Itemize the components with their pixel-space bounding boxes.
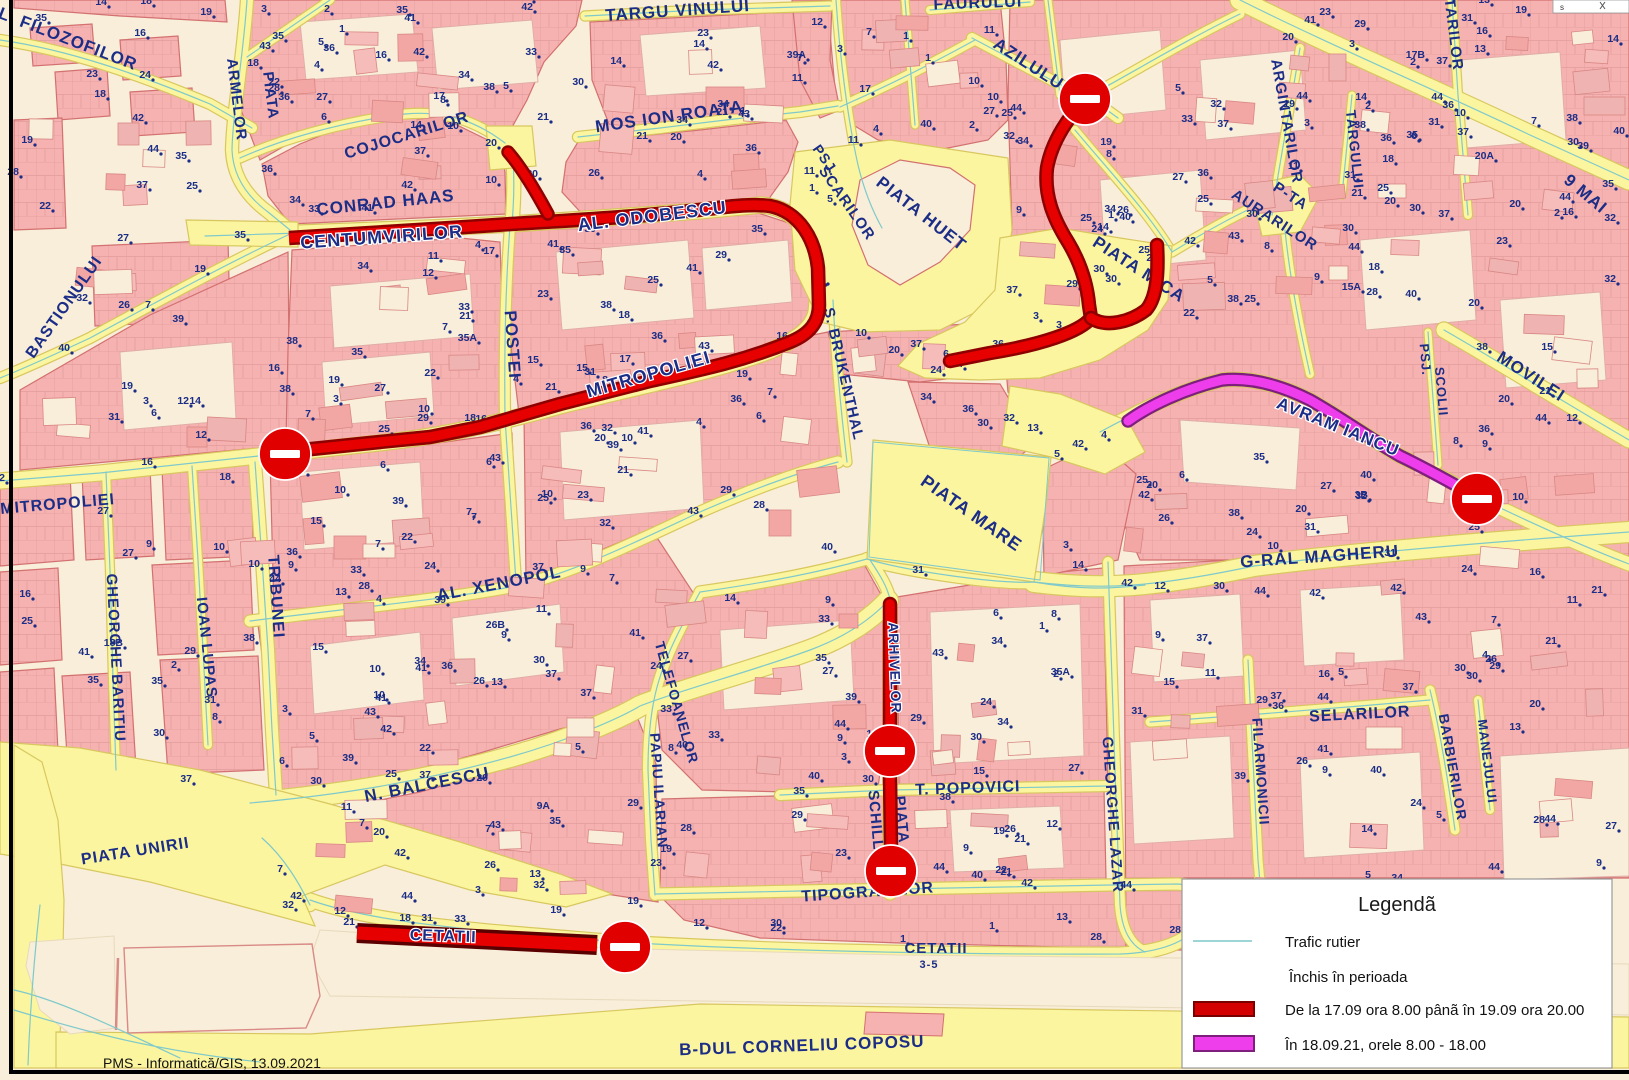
svg-text:9: 9	[580, 563, 586, 575]
svg-text:5: 5	[1338, 666, 1344, 678]
svg-text:38: 38	[279, 383, 291, 395]
svg-text:36: 36	[286, 546, 298, 558]
svg-text:2: 2	[1053, 668, 1059, 680]
svg-text:31: 31	[1304, 521, 1316, 533]
svg-text:25: 25	[378, 423, 390, 435]
svg-text:43: 43	[364, 706, 376, 718]
svg-text:În 18.09.21, orele 8.00 - 18.0: În 18.09.21, orele 8.00 - 18.00	[1284, 1037, 1486, 1054]
svg-text:8: 8	[1264, 240, 1270, 252]
svg-text:14: 14	[95, 0, 107, 8]
svg-text:12: 12	[334, 905, 346, 917]
svg-text:22: 22	[39, 200, 51, 212]
svg-text:19: 19	[550, 904, 562, 916]
svg-text:13: 13	[1509, 721, 1521, 733]
svg-text:42: 42	[1138, 489, 1150, 501]
svg-text:13: 13	[1027, 422, 1039, 434]
svg-text:11: 11	[804, 165, 815, 177]
svg-text:20: 20	[1282, 31, 1294, 43]
svg-text:20: 20	[1498, 393, 1510, 405]
svg-text:10: 10	[1512, 491, 1524, 503]
svg-text:14: 14	[724, 592, 736, 604]
svg-text:10: 10	[621, 432, 633, 444]
svg-text:18: 18	[247, 57, 259, 69]
svg-text:10: 10	[987, 91, 999, 103]
svg-text:40: 40	[971, 869, 983, 881]
svg-text:42: 42	[401, 179, 413, 191]
svg-text:21: 21	[343, 916, 355, 928]
svg-text:31: 31	[421, 912, 433, 924]
svg-text:3: 3	[1304, 117, 1310, 129]
svg-text:44: 44	[1535, 412, 1547, 424]
svg-text:20: 20	[1384, 195, 1396, 207]
svg-text:25: 25	[1197, 193, 1209, 205]
svg-text:16: 16	[375, 49, 387, 61]
svg-text:25: 25	[385, 768, 397, 780]
svg-text:42: 42	[394, 847, 406, 859]
svg-text:31: 31	[584, 366, 596, 378]
svg-text:43: 43	[259, 40, 271, 52]
svg-text:43: 43	[932, 647, 944, 659]
svg-text:27: 27	[1320, 480, 1332, 492]
svg-text:27: 27	[822, 665, 834, 677]
svg-text:38: 38	[1476, 341, 1488, 353]
svg-text:15: 15	[1541, 341, 1553, 353]
svg-text:9: 9	[825, 594, 831, 606]
svg-text:44: 44	[1431, 91, 1443, 103]
svg-text:34: 34	[289, 194, 301, 206]
svg-text:9A: 9A	[537, 800, 551, 812]
svg-text:25: 25	[1138, 244, 1150, 256]
svg-text:10: 10	[373, 689, 385, 701]
svg-text:16: 16	[1529, 566, 1541, 578]
svg-text:18: 18	[1368, 261, 1380, 273]
svg-text:7: 7	[442, 321, 448, 333]
svg-text:10: 10	[855, 327, 867, 339]
svg-text:44: 44	[1559, 191, 1571, 203]
svg-text:8: 8	[440, 94, 446, 106]
svg-text:14: 14	[610, 55, 622, 67]
svg-text:38: 38	[243, 632, 255, 644]
svg-text:23: 23	[537, 288, 549, 300]
svg-text:29: 29	[184, 645, 196, 657]
svg-text:36: 36	[730, 393, 742, 405]
svg-text:35: 35	[1602, 178, 1614, 190]
svg-text:25: 25	[186, 180, 198, 192]
svg-text:39: 39	[172, 313, 184, 325]
svg-text:37: 37	[910, 338, 922, 350]
svg-text:41: 41	[637, 425, 649, 437]
svg-text:15: 15	[310, 515, 322, 527]
svg-text:41: 41	[629, 627, 641, 639]
svg-text:Trafic rutier: Trafic rutier	[1285, 934, 1360, 951]
svg-text:17: 17	[859, 83, 871, 95]
svg-text:44: 44	[401, 890, 413, 902]
svg-text:44: 44	[1317, 691, 1329, 703]
svg-text:9: 9	[1016, 204, 1022, 216]
svg-text:35: 35	[151, 675, 163, 687]
svg-text:37: 37	[1217, 118, 1229, 130]
svg-text:33: 33	[454, 913, 466, 925]
svg-text:44: 44	[1296, 90, 1308, 102]
svg-text:40: 40	[808, 770, 820, 782]
svg-text:9: 9	[1155, 629, 1161, 641]
svg-text:11: 11	[536, 603, 547, 615]
svg-text:2: 2	[324, 3, 330, 15]
svg-text:4: 4	[697, 168, 703, 180]
svg-text:4: 4	[376, 593, 382, 605]
svg-text:43: 43	[489, 819, 501, 831]
svg-text:23: 23	[577, 489, 589, 501]
svg-text:3: 3	[143, 395, 149, 407]
svg-text:2: 2	[171, 659, 177, 671]
svg-text:20: 20	[888, 344, 900, 356]
svg-text:5: 5	[1207, 274, 1213, 286]
svg-text:21: 21	[1591, 584, 1603, 596]
svg-text:5: 5	[503, 80, 509, 92]
svg-text:36: 36	[745, 142, 757, 154]
svg-text:26: 26	[588, 167, 600, 179]
svg-text:37: 37	[1196, 632, 1208, 644]
svg-text:30: 30	[1454, 662, 1466, 674]
svg-text:35: 35	[87, 674, 99, 686]
svg-text:7: 7	[866, 26, 872, 38]
svg-text:33: 33	[818, 613, 830, 625]
svg-text:34: 34	[458, 69, 470, 81]
svg-text:30: 30	[310, 775, 322, 787]
svg-text:28: 28	[680, 822, 692, 834]
svg-text:36: 36	[1380, 132, 1392, 144]
svg-text:21: 21	[537, 111, 549, 123]
svg-text:23: 23	[1319, 6, 1331, 18]
svg-text:22: 22	[995, 864, 1007, 876]
svg-text:23: 23	[1496, 235, 1508, 247]
svg-text:24: 24	[424, 560, 436, 572]
svg-text:20: 20	[485, 137, 497, 149]
svg-text:5: 5	[1175, 82, 1181, 94]
svg-text:21: 21	[459, 310, 471, 322]
svg-text:28: 28	[1366, 286, 1378, 298]
svg-text:19: 19	[200, 6, 212, 18]
svg-text:41: 41	[686, 262, 698, 274]
svg-text:11: 11	[848, 134, 859, 146]
svg-text:18: 18	[618, 309, 630, 321]
svg-text:10: 10	[334, 484, 346, 496]
svg-text:24: 24	[139, 69, 151, 81]
svg-text:30: 30	[533, 654, 545, 666]
svg-text:4: 4	[696, 416, 702, 428]
svg-text:39: 39	[607, 439, 619, 451]
svg-text:30: 30	[1105, 273, 1117, 285]
svg-text:5: 5	[318, 36, 324, 48]
svg-text:42: 42	[1121, 577, 1133, 589]
svg-text:20: 20	[1295, 503, 1307, 515]
svg-text:3: 3	[1349, 38, 1355, 50]
svg-text:36: 36	[580, 420, 592, 432]
svg-text:19: 19	[21, 134, 33, 146]
svg-text:30: 30	[862, 773, 874, 785]
svg-text:18: 18	[94, 88, 106, 100]
svg-text:39: 39	[342, 752, 354, 764]
svg-text:37: 37	[1402, 681, 1414, 693]
svg-text:42: 42	[380, 723, 392, 735]
svg-text:32: 32	[601, 422, 613, 434]
svg-text:31: 31	[1131, 705, 1143, 717]
svg-text:9: 9	[963, 842, 969, 854]
svg-text:40: 40	[58, 342, 70, 354]
svg-text:34: 34	[1104, 203, 1116, 215]
svg-text:10: 10	[248, 558, 260, 570]
svg-text:29: 29	[715, 249, 727, 261]
svg-text:9: 9	[501, 629, 507, 641]
svg-text:38: 38	[600, 299, 612, 311]
svg-text:16: 16	[1318, 668, 1330, 680]
svg-text:29: 29	[1066, 278, 1078, 290]
svg-text:10: 10	[1454, 107, 1466, 119]
svg-text:36: 36	[1197, 167, 1209, 179]
svg-text:35: 35	[549, 815, 561, 827]
svg-text:29: 29	[1354, 18, 1366, 30]
svg-text:18: 18	[140, 0, 152, 7]
svg-text:9: 9	[837, 732, 843, 744]
svg-text:22: 22	[1183, 307, 1195, 319]
svg-text:19: 19	[736, 368, 748, 380]
svg-text:15: 15	[1163, 676, 1175, 688]
svg-text:7: 7	[305, 408, 311, 420]
svg-text:12: 12	[422, 267, 434, 279]
svg-text:35: 35	[559, 244, 571, 256]
svg-text:16: 16	[19, 588, 31, 600]
svg-text:1: 1	[809, 182, 815, 194]
svg-text:19: 19	[121, 380, 133, 392]
svg-text:9: 9	[146, 538, 152, 550]
svg-text:39: 39	[1577, 140, 1589, 152]
svg-text:34: 34	[357, 260, 369, 272]
svg-text:3: 3	[261, 3, 267, 15]
svg-text:24: 24	[930, 364, 942, 376]
svg-text:36: 36	[441, 660, 453, 672]
svg-text:8: 8	[1106, 148, 1112, 160]
svg-text:27: 27	[983, 105, 995, 117]
svg-text:17: 17	[619, 353, 631, 365]
svg-text:30: 30	[572, 76, 584, 88]
svg-text:37: 37	[414, 145, 426, 157]
svg-text:s: s	[1560, 3, 1564, 12]
svg-text:44: 44	[933, 861, 945, 873]
svg-text:27: 27	[117, 232, 129, 244]
svg-text:3: 3	[837, 43, 843, 55]
svg-text:14: 14	[1072, 559, 1084, 571]
svg-text:31: 31	[1428, 116, 1440, 128]
svg-text:35: 35	[793, 785, 805, 797]
svg-text:30: 30	[1342, 222, 1354, 234]
svg-text:11: 11	[984, 24, 995, 36]
svg-text:CETATII: CETATII	[904, 940, 967, 957]
svg-text:28: 28	[1169, 924, 1181, 936]
svg-text:2: 2	[1410, 56, 1416, 68]
svg-text:22: 22	[401, 531, 413, 543]
svg-text:30: 30	[970, 731, 982, 743]
svg-text:15: 15	[527, 354, 539, 366]
svg-text:11: 11	[792, 72, 803, 84]
svg-text:4: 4	[873, 123, 879, 135]
svg-text:35: 35	[272, 30, 284, 42]
svg-text:24: 24	[1246, 526, 1258, 538]
svg-text:44: 44	[1348, 241, 1360, 253]
svg-text:18: 18	[399, 912, 411, 924]
svg-text:32: 32	[0, 472, 5, 484]
svg-text:30: 30	[1567, 136, 1579, 148]
svg-text:29: 29	[1489, 660, 1501, 672]
svg-text:4: 4	[314, 59, 320, 71]
svg-text:9: 9	[1482, 438, 1488, 450]
svg-text:23: 23	[650, 857, 662, 869]
svg-text:27: 27	[1172, 171, 1184, 183]
svg-text:11: 11	[428, 250, 439, 262]
svg-text:14: 14	[693, 38, 705, 50]
svg-text:42: 42	[1072, 438, 1084, 450]
svg-text:9: 9	[1596, 857, 1602, 869]
svg-text:27: 27	[374, 382, 386, 394]
svg-text:37: 37	[1270, 690, 1282, 702]
svg-text:33: 33	[525, 46, 537, 58]
svg-text:3: 3	[841, 751, 847, 763]
svg-text:40: 40	[1119, 211, 1131, 223]
svg-text:19: 19	[194, 263, 206, 275]
svg-text:30: 30	[1093, 263, 1105, 275]
svg-text:40: 40	[1360, 469, 1372, 481]
svg-text:40: 40	[821, 541, 833, 553]
svg-text:26: 26	[484, 859, 496, 871]
svg-text:34: 34	[920, 391, 932, 403]
svg-text:8: 8	[668, 742, 674, 754]
svg-text:31: 31	[1461, 12, 1473, 24]
svg-text:24: 24	[980, 696, 992, 708]
svg-text:12: 12	[177, 395, 189, 407]
svg-text:37: 37	[136, 179, 148, 191]
svg-text:37: 37	[1006, 284, 1018, 296]
svg-text:2: 2	[969, 119, 975, 131]
svg-text:41: 41	[547, 238, 559, 250]
svg-text:8: 8	[1051, 608, 1057, 620]
svg-text:30: 30	[1213, 580, 1225, 592]
svg-text:12: 12	[1154, 580, 1166, 592]
svg-text:42: 42	[1184, 235, 1196, 247]
svg-text:21: 21	[636, 130, 648, 142]
svg-text:16: 16	[268, 362, 280, 374]
svg-text:3: 3	[282, 703, 288, 715]
svg-text:29: 29	[1256, 694, 1268, 706]
svg-text:35A: 35A	[458, 332, 478, 344]
svg-text:3-5: 3-5	[920, 959, 939, 971]
svg-text:42: 42	[1390, 582, 1402, 594]
svg-text:27: 27	[316, 91, 328, 103]
svg-text:12: 12	[195, 429, 207, 441]
svg-text:1: 1	[903, 30, 909, 42]
svg-text:13: 13	[1056, 911, 1068, 923]
svg-text:22: 22	[419, 742, 431, 754]
svg-text:14: 14	[1607, 33, 1619, 45]
svg-text:35: 35	[351, 346, 363, 358]
svg-text:37: 37	[1436, 55, 1448, 67]
svg-text:8: 8	[1453, 435, 1459, 447]
svg-text:10: 10	[968, 75, 980, 87]
svg-text:Închis în perioada: Închis în perioada	[1288, 969, 1408, 986]
svg-text:28: 28	[358, 580, 370, 592]
svg-text:30: 30	[153, 727, 165, 739]
svg-text:22: 22	[424, 367, 436, 379]
svg-text:44: 44	[834, 718, 846, 730]
svg-text:25: 25	[21, 615, 33, 627]
svg-text:14: 14	[189, 395, 201, 407]
svg-text:27: 27	[1068, 762, 1080, 774]
svg-text:21: 21	[1014, 833, 1026, 845]
svg-text:6: 6	[486, 456, 492, 468]
svg-text:10: 10	[213, 541, 225, 553]
svg-text:20: 20	[373, 826, 385, 838]
svg-text:32: 32	[1604, 212, 1616, 224]
svg-text:16: 16	[141, 456, 153, 468]
svg-text:29: 29	[720, 484, 732, 496]
svg-text:14: 14	[1361, 823, 1373, 835]
svg-text:12: 12	[693, 917, 705, 929]
svg-text:10: 10	[485, 174, 497, 186]
svg-text:23: 23	[835, 847, 847, 859]
svg-text:CETATII: CETATII	[409, 927, 476, 946]
svg-text:23: 23	[86, 68, 98, 80]
svg-text:6: 6	[1179, 469, 1185, 481]
svg-text:4: 4	[1101, 429, 1107, 441]
svg-text:37: 37	[580, 687, 592, 699]
svg-text:6: 6	[1411, 130, 1417, 142]
svg-text:21: 21	[617, 464, 629, 476]
svg-text:32: 32	[282, 899, 294, 911]
svg-text:26: 26	[1158, 512, 1170, 524]
svg-text:7: 7	[1491, 614, 1497, 626]
svg-text:36: 36	[1478, 423, 1490, 435]
svg-text:14: 14	[1355, 91, 1367, 103]
svg-text:31: 31	[108, 411, 120, 423]
svg-text:25: 25	[1244, 293, 1256, 305]
svg-text:19: 19	[627, 895, 639, 907]
svg-text:27: 27	[677, 650, 689, 662]
svg-text:18: 18	[219, 471, 231, 483]
svg-text:40: 40	[1613, 125, 1625, 137]
svg-text:7: 7	[609, 572, 615, 584]
svg-text:1: 1	[989, 920, 995, 932]
svg-text:31: 31	[912, 564, 924, 576]
svg-text:16: 16	[1476, 25, 1488, 37]
svg-text:34: 34	[997, 716, 1009, 728]
svg-text:3: 3	[1033, 310, 1039, 322]
svg-text:39: 39	[845, 691, 857, 703]
svg-text:41: 41	[1317, 743, 1329, 755]
svg-text:6: 6	[321, 111, 327, 123]
svg-text:44: 44	[1010, 102, 1022, 114]
svg-text:32: 32	[1355, 490, 1367, 502]
svg-text:42: 42	[413, 46, 425, 58]
svg-text:25: 25	[1377, 182, 1389, 194]
svg-text:7: 7	[277, 863, 283, 875]
svg-text:6: 6	[279, 755, 285, 767]
svg-text:35: 35	[234, 229, 246, 241]
svg-text:2: 2	[1554, 207, 1560, 219]
svg-text:25: 25	[1136, 474, 1148, 486]
svg-text:33: 33	[350, 564, 362, 576]
svg-text:42: 42	[521, 1, 533, 13]
svg-text:40: 40	[920, 118, 932, 130]
svg-text:36: 36	[651, 330, 663, 342]
svg-text:8: 8	[212, 711, 218, 723]
